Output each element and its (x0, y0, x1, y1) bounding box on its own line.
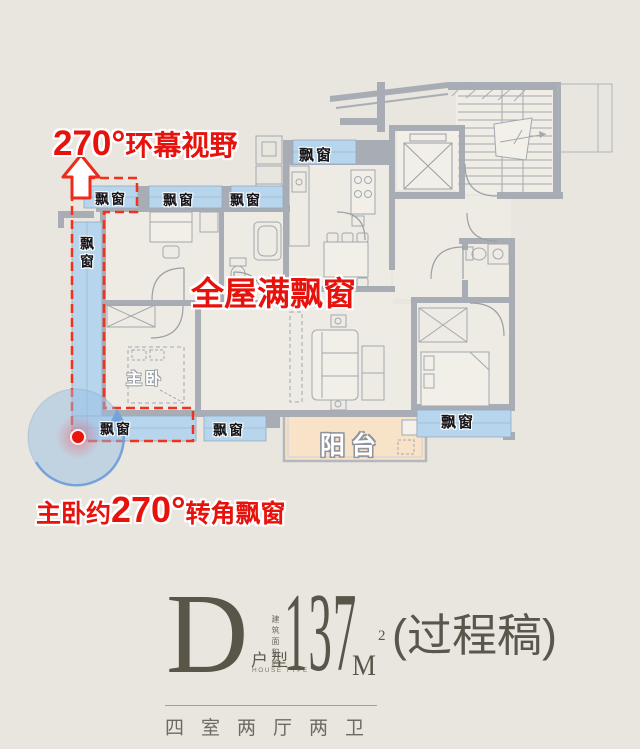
surround-view-degree: 270° (53, 124, 125, 163)
plan-letter: D (166, 577, 248, 691)
annotation-full-bay-windows: 全屋满飘窗 (191, 277, 356, 310)
area-unit: M (352, 649, 376, 683)
annotation-corner-bay: 主卧约270°转角飘窗 (36, 492, 286, 528)
bay-window-label: 飘窗 (213, 420, 245, 440)
bay-window-label: 飘窗 (230, 190, 262, 210)
area-unit-power: 2 (378, 628, 386, 645)
area-note: 建筑面积约 (270, 615, 281, 687)
corner-dot (71, 430, 85, 444)
annotation-surround-view: 270°环幕视野 (53, 126, 237, 161)
area-value: 137 (284, 577, 357, 689)
surround-view-text: 环幕视野 (125, 130, 237, 161)
bay-window-label: 飘窗 (299, 144, 333, 165)
bay-window-label: 飘窗 (441, 411, 475, 432)
master-bedroom-label: 主卧 (126, 365, 164, 389)
title-divider (165, 705, 377, 706)
bay-window-label: 飘窗 (95, 189, 127, 209)
stage-note: (过程稿) (392, 609, 557, 663)
balcony-label: 阳台 (320, 426, 382, 462)
corner-bay-suffix: 转角飘窗 (185, 500, 285, 528)
bay-window-label: 飘窗 (163, 190, 195, 210)
elevator-shaft (397, 131, 457, 190)
corner-bay-degree: 270° (111, 489, 185, 530)
bay-window-label: 飘窗 (100, 419, 132, 439)
bay-window-label-vertical: 飘窗 (77, 236, 97, 272)
layout-summary: 四室两厅两卫 (165, 713, 381, 740)
floorplan-poster: 飘窗 飘窗 飘窗 飘窗 飘窗 飘窗 飘窗 飘窗 主卧 阳台 270°环幕视野 全… (0, 0, 640, 749)
corner-bay-prefix: 主卧约 (36, 500, 111, 528)
